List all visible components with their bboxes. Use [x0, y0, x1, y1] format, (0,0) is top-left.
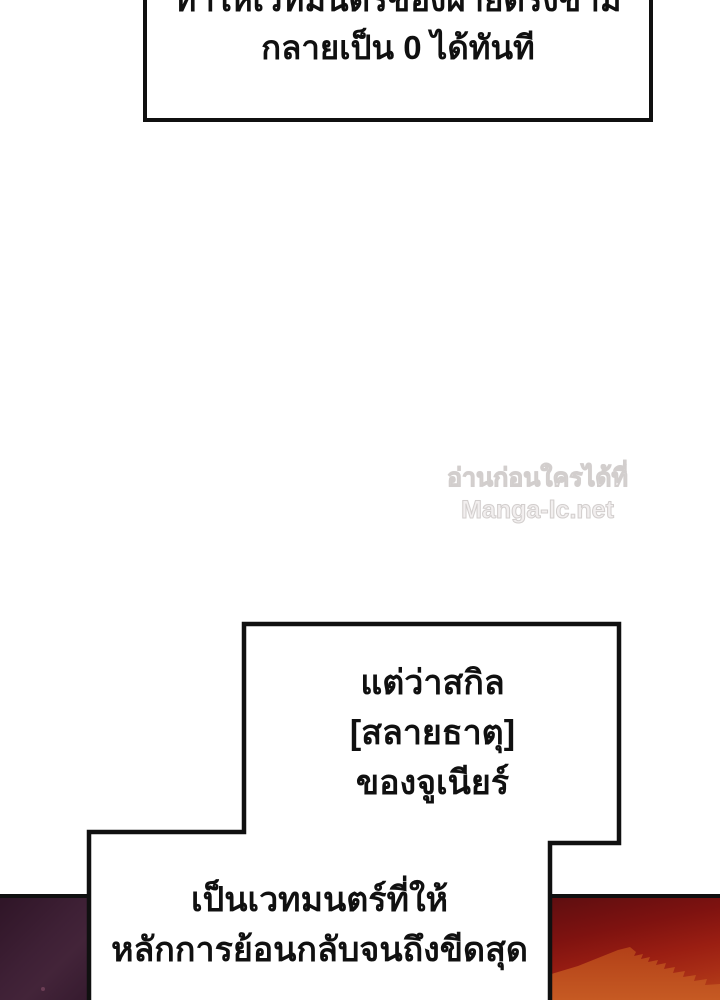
flame-ridge-icon — [548, 898, 720, 1000]
speech-middle-line-3: ของจูเนียร์ — [244, 758, 621, 808]
speech-bubble-middle: แต่ว่าสกิล [สลายธาตุ] ของจูเนียร์ — [244, 658, 621, 808]
speech-bottom-line-2: หลักการย้อนกลับจนถึงขีดสุด — [89, 925, 550, 975]
speech-top-line-1: ทำให้เวทมนตร์ของฝ่ายตรงข้าม — [147, 0, 649, 24]
artwork-right-flames — [548, 894, 720, 1000]
sparkle-dot — [41, 987, 45, 991]
speech-bubble-top: ทำให้เวทมนตร์ของฝ่ายตรงข้าม กลายเป็น 0 ไ… — [143, 0, 653, 122]
speech-middle-line-2: [สลายธาตุ] — [244, 708, 621, 758]
manga-page: ทำให้เวทมนตร์ของฝ่ายตรงข้าม กลายเป็น 0 ไ… — [0, 0, 720, 1000]
speech-bottom-line-1: เป็นเวทมนตร์ที่ให้ — [89, 875, 550, 925]
watermark-site-name: Manga-lc.net — [435, 494, 640, 526]
speech-bubble-bottom: เป็นเวทมนตร์ที่ให้ หลักการย้อนกลับจนถึงข… — [89, 875, 550, 975]
artwork-left-purple — [0, 894, 92, 1000]
speech-top-line-2: กลายเป็น 0 ได้ทันที — [147, 24, 649, 72]
speech-middle-line-1: แต่ว่าสกิล — [244, 658, 621, 708]
watermark: อ่านก่อนใครได้ที่ Manga-lc.net — [435, 462, 640, 526]
watermark-thai-text: อ่านก่อนใครได้ที่ — [435, 462, 640, 494]
